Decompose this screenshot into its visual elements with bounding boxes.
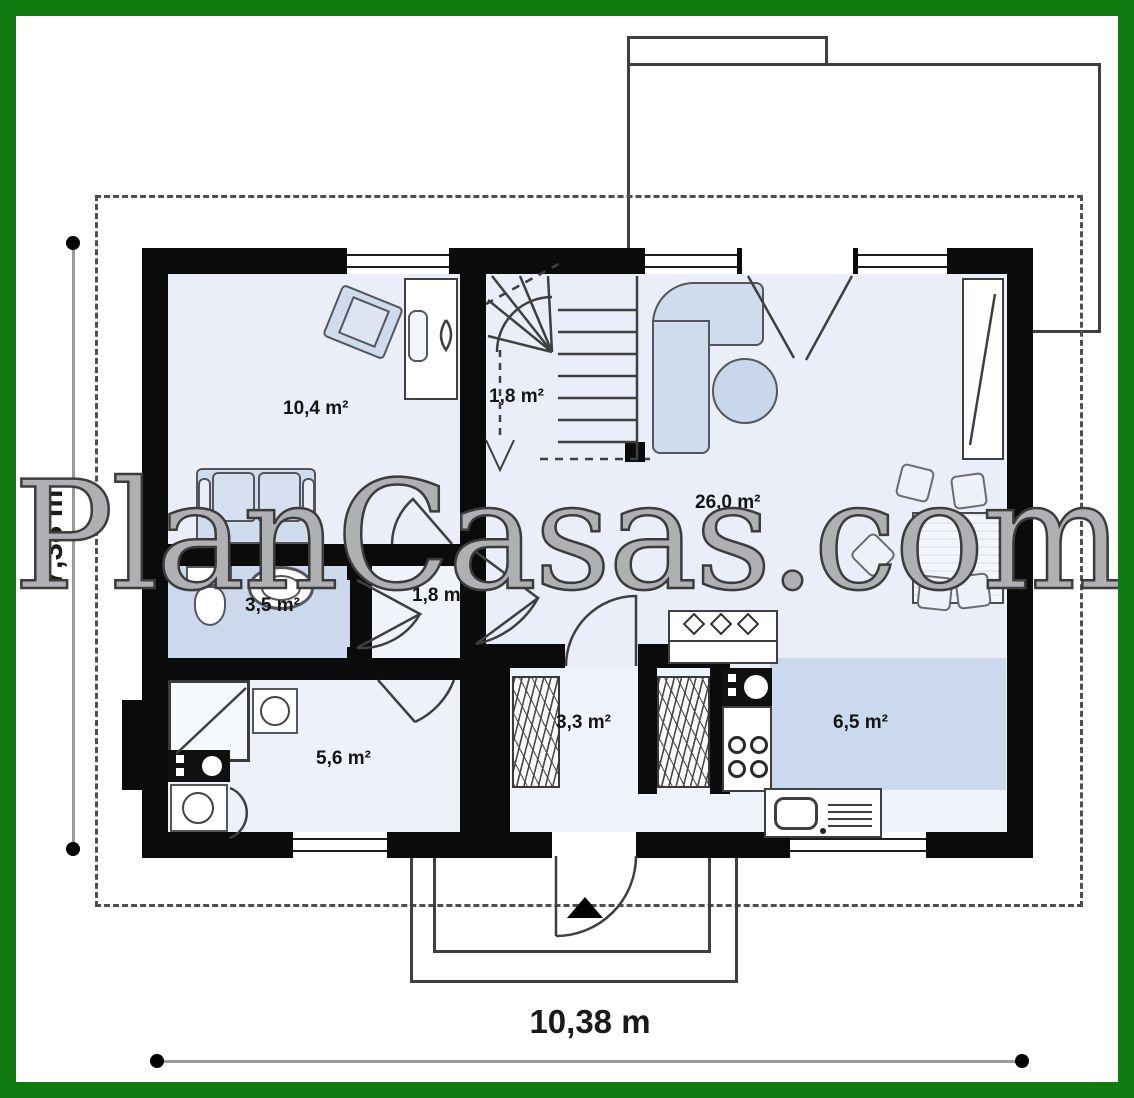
utility-sink-basin <box>260 696 290 726</box>
area-label-bathroom: 3,5 m² <box>245 595 300 617</box>
stove-burner <box>728 736 746 754</box>
window-living-left <box>640 248 742 274</box>
wardrobe-right <box>657 676 710 788</box>
water-heater-switch <box>176 755 184 763</box>
oven-door <box>774 797 818 830</box>
toilet-bowl <box>194 586 226 626</box>
wall-hall-living-stub <box>460 644 486 658</box>
area-label-hall: 1,8 m² <box>412 585 467 607</box>
dimension-dot <box>66 842 80 856</box>
terrace-step-outline <box>627 36 828 66</box>
stair-wall-stub <box>625 442 645 462</box>
washing-machine-drum <box>182 792 214 824</box>
hall-floor <box>372 566 460 658</box>
wall-closet-niche-left <box>638 668 657 794</box>
dining-chair <box>916 574 953 611</box>
dimension-dot <box>66 236 80 250</box>
kitchen-sink-basin <box>744 675 768 699</box>
sofa-armrest <box>302 478 315 518</box>
dining-chair <box>950 472 988 510</box>
wall-utility-top-b <box>452 658 486 680</box>
sofa-cushion <box>258 472 301 522</box>
stove-burner <box>750 736 768 754</box>
wall-utility-top-a <box>168 658 378 680</box>
area-label-kitchen: 6,5 m² <box>833 712 888 734</box>
width-dimension-line <box>157 1060 1022 1063</box>
kitchen-floor-patch <box>770 658 1006 790</box>
window-utility <box>288 832 392 858</box>
width-dimension-label: 10,38 m <box>529 1003 650 1041</box>
oven-vent <box>828 799 872 827</box>
height-dimension-line <box>72 242 75 849</box>
wardrobe-left <box>512 676 560 788</box>
entrance-arrow-icon <box>567 897 603 918</box>
wall-bedroom-bottom-b <box>452 544 486 566</box>
tv-cabinet <box>962 278 1004 460</box>
area-label-bedroom: 10,4 m² <box>283 398 348 420</box>
dimension-dot <box>150 1054 164 1068</box>
desk-chair <box>408 310 428 362</box>
sofa-armrest <box>198 478 211 518</box>
sofa-cushion <box>212 472 255 522</box>
wall-entry-top-a <box>510 644 565 668</box>
area-label-living: 26,0 m² <box>695 492 760 514</box>
dining-chair <box>954 572 992 610</box>
area-label-utility: 5,6 m² <box>316 748 371 770</box>
stove-burner <box>728 760 746 778</box>
wall-bathroom-top-stub <box>347 566 361 580</box>
area-label-stairs: 1,8 m² <box>489 386 544 408</box>
dimension-dot <box>1015 1054 1029 1068</box>
chimney <box>122 700 144 790</box>
coffee-table-round <box>712 358 778 424</box>
bar-counter-divider <box>670 640 776 642</box>
wall-bedroom-stairs <box>460 248 486 566</box>
water-heater-switch <box>176 768 184 776</box>
height-dimension-label: 7,38 m <box>34 490 70 587</box>
water-heater-dial <box>202 756 222 776</box>
floor-plan-canvas: 7,38 m 10,38 m <box>0 0 1134 1098</box>
front-door-opening <box>552 832 636 858</box>
terrace-door-opening <box>742 248 853 274</box>
oven-knob <box>820 828 826 834</box>
corner-sofa-left <box>652 320 710 454</box>
kitchen-sink-switch <box>728 674 736 682</box>
wall-bedroom-bottom-a <box>168 544 392 566</box>
stove-burner <box>750 760 768 778</box>
window-bedroom <box>342 248 454 274</box>
wall-entry-left <box>486 644 510 832</box>
area-label-entry: 3,3 m² <box>556 712 611 734</box>
kitchen-sink-switch <box>728 688 736 696</box>
toilet-tank <box>186 566 232 586</box>
window-living-right <box>853 248 952 274</box>
